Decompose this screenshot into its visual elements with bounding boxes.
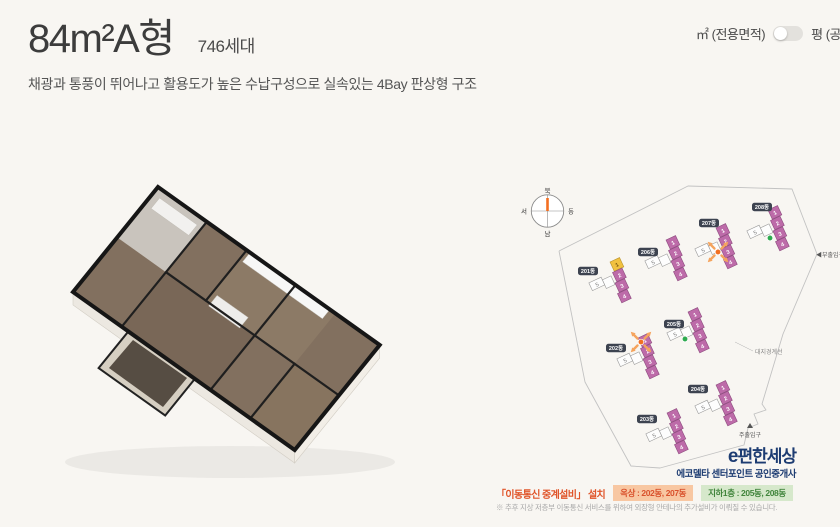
- page-subtitle: 채광과 통풍이 뛰어나고 활용도가 높은 수납구성으로 실속있는 4Bay 판상…: [28, 74, 477, 94]
- building-201동: 51234: [585, 258, 638, 312]
- main-entrance-label: 주출입구: [739, 431, 762, 439]
- floorplan-3d-render: [40, 162, 405, 482]
- compass: 북 남 서 동: [521, 187, 574, 238]
- svg-text:202동: 202동: [609, 344, 623, 352]
- area-unit-toggle: ㎡ (전용면적) 평 (공급면적): [696, 24, 840, 43]
- units-count: 746세대: [198, 32, 255, 57]
- header: 84m²A형 746세대 채광과 통풍이 뛰어나고 활용도가 높은 수납구성으로…: [28, 6, 477, 94]
- toggle-label-pyeong[interactable]: 평 (공급면적): [811, 24, 840, 43]
- compass-west-label: 서: [521, 207, 527, 216]
- svg-text:204동: 204동: [691, 385, 705, 393]
- site-boundary-label: 대지경계선: [755, 348, 783, 356]
- rooftop-antenna-marker-202동: [638, 339, 644, 345]
- area-toggle-switch[interactable]: [773, 26, 803, 41]
- svg-text:208동: 208동: [755, 203, 769, 211]
- sub-entrance-label: ◀부출입구: [816, 251, 840, 259]
- toggle-knob: [774, 27, 787, 40]
- svg-text:205동: 205동: [667, 320, 681, 328]
- agency-name: 에코델타 센터포인트 공인중개사: [676, 470, 796, 481]
- floorplan-shadow: [65, 446, 395, 478]
- basement-badge: 지하1층 : 205동, 208동: [701, 485, 793, 501]
- brand-initial: e: [728, 446, 738, 467]
- brand-logo: e편한세상 에코델타 센터포인트 공인중개사: [676, 446, 796, 481]
- basement-antenna-marker-205동: [682, 336, 688, 342]
- building-208동: 51234: [743, 206, 796, 260]
- svg-text:203동: 203동: [640, 415, 654, 423]
- rooftop-badge: 옥상 : 202동, 207동: [613, 485, 693, 501]
- brand-name: e편한세상: [676, 446, 796, 468]
- toggle-label-sqm[interactable]: ㎡ (전용면적): [696, 24, 765, 43]
- buildings-layer: 51234201동51234206동51234207동51234208동5123…: [578, 203, 795, 463]
- compass-south-label: 남: [545, 229, 551, 238]
- svg-text:201동: 201동: [581, 267, 595, 275]
- compass-north-label: 북: [545, 187, 551, 195]
- compass-east-label: 동: [568, 208, 574, 216]
- building-206동: 51234: [641, 236, 694, 290]
- building-205동: 51234: [663, 308, 716, 362]
- legend-title: 「이동통신 중계설비」 설치: [496, 486, 605, 501]
- svg-text:207동: 207동: [702, 219, 716, 227]
- page-title: 84m²A형: [28, 6, 174, 64]
- boundary-leader-line: [735, 342, 753, 351]
- antenna-legend: 「이동통신 중계설비」 설치 옥상 : 202동, 207동 지하1층 : 20…: [496, 485, 793, 501]
- site-plan-map: 북 남 서 동 51234201동51234206동51234207동51234…: [495, 175, 840, 475]
- svg-text:206동: 206동: [641, 248, 655, 256]
- unit-type-page: { "header": { "title": "84m²A형", "units_…: [0, 0, 840, 527]
- main-entrance-arrow-icon: [747, 423, 753, 428]
- rooftop-antenna-marker-207동: [715, 249, 721, 255]
- legend-note: ※ 추후 지상 저층부 이동통신 서비스를 위하여 외장형 안테나의 추가설비가…: [496, 502, 777, 513]
- basement-antenna-marker-208동: [767, 235, 773, 241]
